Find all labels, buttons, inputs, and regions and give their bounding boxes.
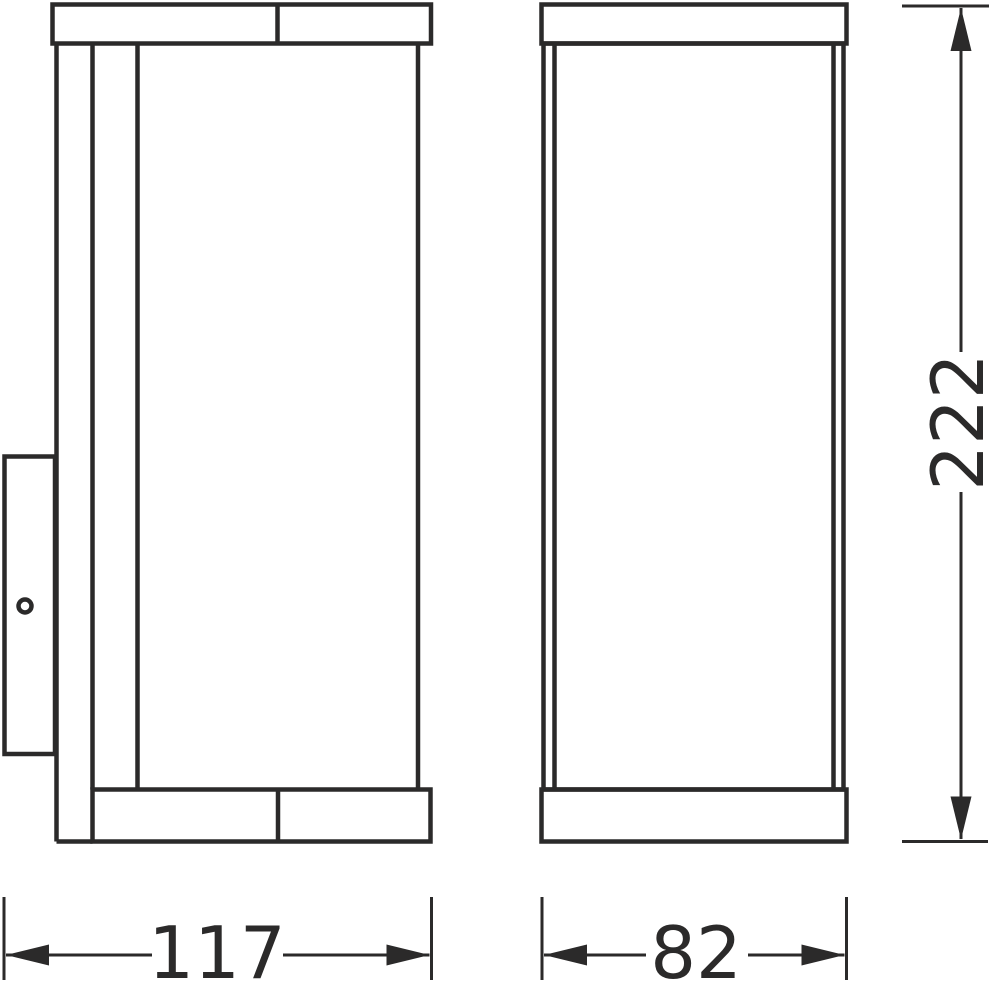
- side-view: [5, 5, 432, 842]
- drawing-strokes: [4, 5, 989, 981]
- front-width-label: 82: [650, 911, 742, 995]
- drawing-fills: 117 82 222: [6, 8, 1000, 995]
- overall-height-label: 222: [916, 353, 1000, 490]
- side-top-cap: [53, 5, 432, 44]
- mounting-hole: [19, 600, 32, 613]
- front-body: [544, 44, 844, 790]
- arrowhead-up-icon: [951, 8, 972, 51]
- arrowhead-down-icon: [951, 797, 972, 840]
- side-width-label: 117: [148, 911, 285, 995]
- arrowhead-right-icon: [802, 945, 845, 966]
- technical-drawing-canvas: 117 82 222: [0, 0, 1000, 1000]
- arrowhead-right-icon: [387, 945, 430, 966]
- arrowhead-left-icon: [6, 945, 49, 966]
- front-top-cap: [542, 5, 847, 44]
- arrowhead-left-icon: [544, 945, 587, 966]
- side-bottom-cap: [93, 790, 431, 842]
- front-bottom-cap: [542, 790, 847, 842]
- front-view: [542, 5, 847, 842]
- dimension-drawing: 117 82 222: [0, 0, 1000, 1000]
